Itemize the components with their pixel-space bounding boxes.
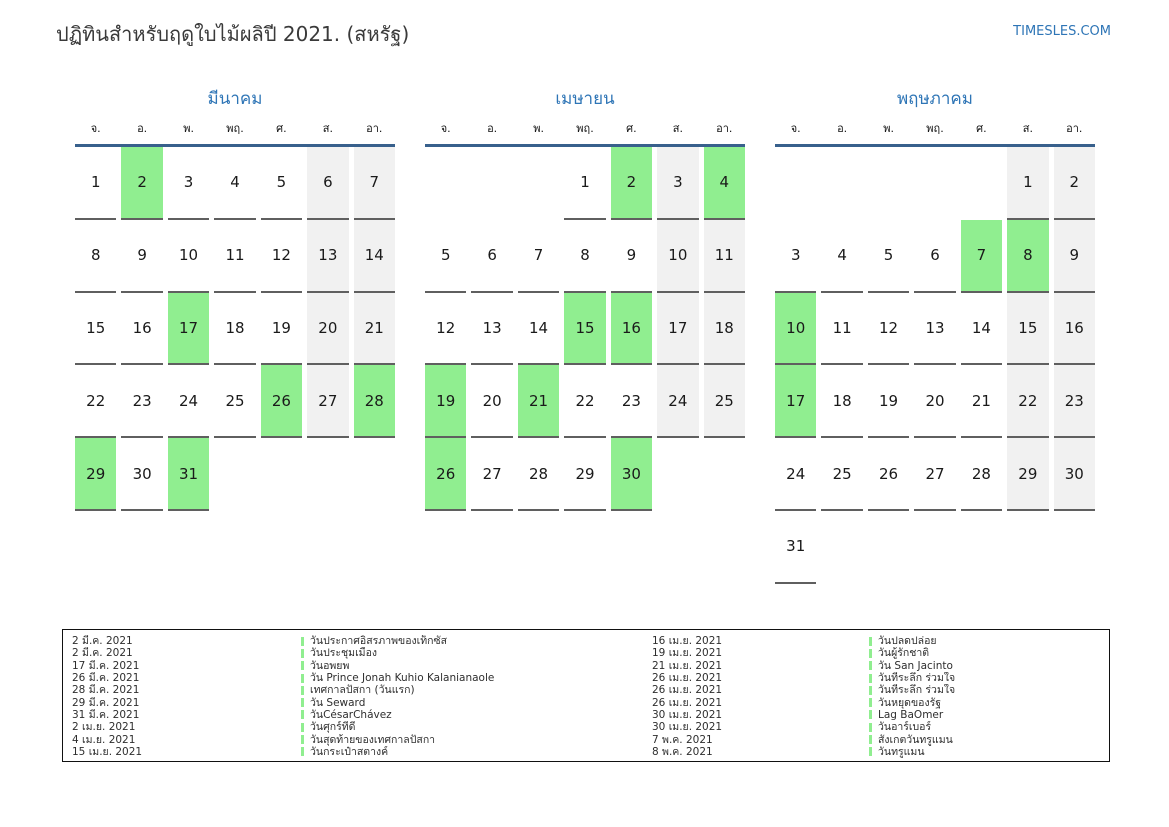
legend-label-text: วันประกาศอิสรภาพของเท็กซัส bbox=[310, 635, 447, 647]
day-cell: 5 bbox=[425, 220, 466, 293]
day-cell: 7 bbox=[518, 220, 559, 293]
weekday-label: จ. bbox=[425, 122, 466, 136]
holiday-marker-icon bbox=[301, 649, 304, 658]
legend-label-text: วันอาร์เบอร์ bbox=[878, 721, 931, 733]
calendars: มีนาคมจ.อ.พ.พฤ.ศ.ส.อา.123456789101112131… bbox=[75, 88, 1095, 584]
legend-entry: วันประกาศอิสรภาพของเท็กซัส bbox=[301, 635, 643, 647]
day-cell: 27 bbox=[307, 365, 348, 438]
legend-entry: เทศกาลปัสกา (วันแรก) bbox=[301, 684, 643, 696]
day-cell: 12 bbox=[868, 293, 909, 366]
legend-row: 29 มี.ค. 2021วัน Seward26 เม.ย. 2021วันห… bbox=[63, 696, 1109, 708]
day-cell bbox=[518, 147, 559, 220]
weekday-label: พฤ. bbox=[214, 122, 255, 136]
day-cell bbox=[868, 511, 909, 584]
day-cell: 20 bbox=[471, 365, 512, 438]
legend-label-text: วันทรูแมน bbox=[878, 746, 925, 758]
day-cell: 19 bbox=[868, 365, 909, 438]
legend-entry: วัน San Jacinto bbox=[869, 660, 1109, 672]
day-cell: 25 bbox=[704, 365, 745, 438]
day-cell: 1 bbox=[564, 147, 605, 220]
legend-date: 28 มี.ค. 2021 bbox=[63, 684, 301, 696]
legend-label-text: วัน San Jacinto bbox=[878, 660, 953, 672]
month-block: เมษายนจ.อ.พ.พฤ.ศ.ส.อา.123456789101112131… bbox=[425, 88, 745, 584]
legend-row: 28 มี.ค. 2021เทศกาลปัสกา (วันแรก)26 เม.ย… bbox=[63, 684, 1109, 696]
legend-date: 8 พ.ค. 2021 bbox=[643, 746, 869, 758]
day-cell bbox=[214, 438, 255, 511]
day-cell: 15 bbox=[1007, 293, 1048, 366]
day-cell: 3 bbox=[775, 220, 816, 293]
day-cell: 4 bbox=[704, 147, 745, 220]
day-cell: 29 bbox=[75, 438, 116, 511]
legend-entry: วันสุดท้ายของเทศกาลปัสกา bbox=[301, 734, 643, 746]
legend-entry: วันอพยพ bbox=[301, 660, 643, 672]
day-cell: 18 bbox=[704, 293, 745, 366]
day-cell: 12 bbox=[261, 220, 302, 293]
legend-entry: วันอาร์เบอร์ bbox=[869, 721, 1109, 733]
site-link[interactable]: TIMESLES.COM bbox=[1013, 24, 1111, 39]
weekday-label: ส. bbox=[657, 122, 698, 136]
legend-label-text: วันประชุมเมือง bbox=[310, 647, 377, 659]
day-cell bbox=[307, 438, 348, 511]
day-cell: 25 bbox=[821, 438, 862, 511]
day-cell: 9 bbox=[611, 220, 652, 293]
day-cell: 25 bbox=[214, 365, 255, 438]
day-cell: 2 bbox=[121, 147, 162, 220]
day-cell: 2 bbox=[1054, 147, 1095, 220]
legend-label-text: วัน Prince Jonah Kuhio Kalanianaole bbox=[310, 672, 494, 684]
day-cell: 5 bbox=[261, 147, 302, 220]
legend-entry: วันประชุมเมือง bbox=[301, 647, 643, 659]
weekday-header-row: จ.อ.พ.พฤ.ศ.ส.อา. bbox=[775, 122, 1095, 147]
day-cell: 8 bbox=[564, 220, 605, 293]
legend-date: 2 มี.ค. 2021 bbox=[63, 647, 301, 659]
day-cell: 22 bbox=[75, 365, 116, 438]
holiday-marker-icon bbox=[869, 686, 872, 695]
day-cell: 6 bbox=[914, 220, 955, 293]
legend-row: 2 มี.ค. 2021วันประชุมเมือง19 เม.ย. 2021ว… bbox=[63, 647, 1109, 659]
weekday-label: จ. bbox=[75, 122, 116, 136]
legend-entry: วันปลดปล่อย bbox=[869, 635, 1109, 647]
day-cell bbox=[261, 438, 302, 511]
day-cell: 1 bbox=[75, 147, 116, 220]
day-cell: 1 bbox=[1007, 147, 1048, 220]
weekday-label: อ. bbox=[471, 122, 512, 136]
day-cell: 24 bbox=[657, 365, 698, 438]
legend-entry: วันที่ระลึก ร่วมใจ bbox=[869, 684, 1109, 696]
legend-entry: วัน Prince Jonah Kuhio Kalanianaole bbox=[301, 672, 643, 684]
holiday-marker-icon bbox=[869, 747, 872, 756]
holiday-marker-icon bbox=[869, 637, 872, 646]
legend-label-text: วันศุกร์ที่ดี bbox=[310, 721, 355, 733]
weekday-label: ส. bbox=[1007, 122, 1048, 136]
page-title: ปฏิทินสำหรับฤดูใบไม้ผลิปี 2021. (สหรัฐ) bbox=[56, 18, 409, 50]
legend-label-text: วันอพยพ bbox=[310, 660, 349, 672]
day-cell: 28 bbox=[961, 438, 1002, 511]
day-cell: 10 bbox=[657, 220, 698, 293]
month-block: มีนาคมจ.อ.พ.พฤ.ศ.ส.อา.123456789101112131… bbox=[75, 88, 395, 584]
day-cell bbox=[1007, 511, 1048, 584]
holiday-marker-icon bbox=[869, 661, 872, 670]
day-cell bbox=[425, 147, 466, 220]
day-cell: 9 bbox=[121, 220, 162, 293]
day-grid: 1234567891011121314151617181920212223242… bbox=[75, 147, 395, 511]
day-cell: 18 bbox=[214, 293, 255, 366]
legend-entry: สังเกตวันทรูแมน bbox=[869, 734, 1109, 746]
legend-entry: วันผู้รักชาติ bbox=[869, 647, 1109, 659]
day-grid: 1234567891011121314151617181920212223242… bbox=[775, 147, 1095, 584]
legend-date: 31 มี.ค. 2021 bbox=[63, 709, 301, 721]
day-cell: 24 bbox=[775, 438, 816, 511]
day-cell: 17 bbox=[168, 293, 209, 366]
day-cell: 23 bbox=[121, 365, 162, 438]
holiday-marker-icon bbox=[869, 649, 872, 658]
day-cell bbox=[868, 147, 909, 220]
holiday-marker-icon bbox=[301, 674, 304, 683]
day-grid: 1234567891011121314151617181920212223242… bbox=[425, 147, 745, 511]
day-cell bbox=[775, 147, 816, 220]
legend-label-text: วันหยุดของรัฐ bbox=[878, 697, 941, 709]
holiday-marker-icon bbox=[301, 686, 304, 695]
day-cell: 3 bbox=[168, 147, 209, 220]
legend-date: 19 เม.ย. 2021 bbox=[643, 647, 869, 659]
day-cell: 7 bbox=[354, 147, 395, 220]
weekday-label: อ. bbox=[821, 122, 862, 136]
day-cell: 29 bbox=[564, 438, 605, 511]
day-cell: 10 bbox=[775, 293, 816, 366]
day-cell: 13 bbox=[471, 293, 512, 366]
weekday-label: พ. bbox=[518, 122, 559, 136]
day-cell: 3 bbox=[657, 147, 698, 220]
day-cell: 9 bbox=[1054, 220, 1095, 293]
day-cell: 17 bbox=[775, 365, 816, 438]
weekday-header-row: จ.อ.พ.พฤ.ศ.ส.อา. bbox=[425, 122, 745, 147]
weekday-label: ศ. bbox=[611, 122, 652, 136]
legend-date: 2 มี.ค. 2021 bbox=[63, 635, 301, 647]
day-cell: 23 bbox=[611, 365, 652, 438]
day-cell: 21 bbox=[354, 293, 395, 366]
day-cell: 18 bbox=[821, 365, 862, 438]
day-cell: 8 bbox=[1007, 220, 1048, 293]
day-cell: 26 bbox=[425, 438, 466, 511]
legend-row: 31 มี.ค. 2021วันCésarChávez30 เม.ย. 2021… bbox=[63, 709, 1109, 721]
holiday-marker-icon bbox=[301, 637, 304, 646]
day-cell: 28 bbox=[518, 438, 559, 511]
legend-entry: Lag BaOmer bbox=[869, 709, 1109, 721]
month-title: มีนาคม bbox=[75, 88, 395, 110]
legend-entry: วันCésarChávez bbox=[301, 709, 643, 721]
legend-date: 2 เม.ย. 2021 bbox=[63, 721, 301, 733]
weekday-label: พ. bbox=[868, 122, 909, 136]
legend-date: 29 มี.ค. 2021 bbox=[63, 697, 301, 709]
day-cell: 13 bbox=[307, 220, 348, 293]
legend-label-text: สังเกตวันทรูแมน bbox=[878, 734, 953, 746]
day-cell: 6 bbox=[307, 147, 348, 220]
day-cell: 28 bbox=[354, 365, 395, 438]
weekday-label: พ. bbox=[168, 122, 209, 136]
legend-date: 30 เม.ย. 2021 bbox=[643, 709, 869, 721]
holiday-marker-icon bbox=[301, 710, 304, 719]
legend-date: 26 เม.ย. 2021 bbox=[643, 684, 869, 696]
day-cell: 20 bbox=[914, 365, 955, 438]
legend-row: 15 เม.ย. 2021วันกระเป๋าสตางค์8 พ.ค. 2021… bbox=[63, 746, 1109, 758]
month-block: พฤษภาคมจ.อ.พ.พฤ.ศ.ส.อา.12345678910111213… bbox=[775, 88, 1095, 584]
day-cell: 12 bbox=[425, 293, 466, 366]
holiday-marker-icon bbox=[869, 735, 872, 744]
day-cell: 6 bbox=[471, 220, 512, 293]
legend-row: 4 เม.ย. 2021วันสุดท้ายของเทศกาลปัสกา7 พ.… bbox=[63, 733, 1109, 745]
day-cell: 11 bbox=[821, 293, 862, 366]
legend-label-text: Lag BaOmer bbox=[878, 709, 943, 721]
holiday-marker-icon bbox=[301, 723, 304, 732]
day-cell: 4 bbox=[821, 220, 862, 293]
legend-row: 2 เม.ย. 2021วันศุกร์ที่ดี30 เม.ย. 2021วั… bbox=[63, 721, 1109, 733]
weekday-label: อา. bbox=[1054, 122, 1095, 136]
day-cell bbox=[471, 147, 512, 220]
day-cell bbox=[961, 511, 1002, 584]
weekday-label: อา. bbox=[354, 122, 395, 136]
legend-row: 2 มี.ค. 2021วันประกาศอิสรภาพของเท็กซัส16… bbox=[63, 635, 1109, 647]
day-cell: 7 bbox=[961, 220, 1002, 293]
legend-date: 26 มี.ค. 2021 bbox=[63, 672, 301, 684]
legend-box: 2 มี.ค. 2021วันประกาศอิสรภาพของเท็กซัส16… bbox=[62, 629, 1110, 762]
day-cell: 15 bbox=[75, 293, 116, 366]
legend-date: 30 เม.ย. 2021 bbox=[643, 721, 869, 733]
legend-date: 21 เม.ย. 2021 bbox=[643, 660, 869, 672]
day-cell: 23 bbox=[1054, 365, 1095, 438]
day-cell: 21 bbox=[961, 365, 1002, 438]
day-cell bbox=[704, 438, 745, 511]
day-cell: 14 bbox=[518, 293, 559, 366]
day-cell: 19 bbox=[261, 293, 302, 366]
day-cell: 26 bbox=[261, 365, 302, 438]
day-cell bbox=[821, 511, 862, 584]
holiday-marker-icon bbox=[301, 735, 304, 744]
day-cell: 31 bbox=[775, 511, 816, 584]
weekday-label: ศ. bbox=[261, 122, 302, 136]
day-cell bbox=[961, 147, 1002, 220]
legend-date: 17 มี.ค. 2021 bbox=[63, 660, 301, 672]
legend-row: 26 มี.ค. 2021วัน Prince Jonah Kuhio Kala… bbox=[63, 672, 1109, 684]
day-cell: 11 bbox=[704, 220, 745, 293]
month-title: เมษายน bbox=[425, 88, 745, 110]
day-cell: 27 bbox=[914, 438, 955, 511]
legend-entry: วันศุกร์ที่ดี bbox=[301, 721, 643, 733]
legend-label-text: วันปลดปล่อย bbox=[878, 635, 937, 647]
day-cell bbox=[657, 438, 698, 511]
day-cell: 26 bbox=[868, 438, 909, 511]
day-cell: 22 bbox=[1007, 365, 1048, 438]
weekday-label: จ. bbox=[775, 122, 816, 136]
month-title: พฤษภาคม bbox=[775, 88, 1095, 110]
legend-entry: วันหยุดของรัฐ bbox=[869, 697, 1109, 709]
day-cell: 19 bbox=[425, 365, 466, 438]
legend-label-text: วันที่ระลึก ร่วมใจ bbox=[878, 672, 955, 684]
day-cell bbox=[914, 147, 955, 220]
legend-entry: วันที่ระลึก ร่วมใจ bbox=[869, 672, 1109, 684]
day-cell: 16 bbox=[1054, 293, 1095, 366]
day-cell: 24 bbox=[168, 365, 209, 438]
legend-label-text: วันกระเป๋าสตางค์ bbox=[310, 746, 388, 758]
legend-date: 16 เม.ย. 2021 bbox=[643, 635, 869, 647]
day-cell: 8 bbox=[75, 220, 116, 293]
day-cell: 30 bbox=[611, 438, 652, 511]
legend-label-text: เทศกาลปัสกา (วันแรก) bbox=[310, 684, 415, 696]
legend-entry: วัน Seward bbox=[301, 697, 643, 709]
day-cell: 14 bbox=[961, 293, 1002, 366]
day-cell: 13 bbox=[914, 293, 955, 366]
holiday-marker-icon bbox=[869, 674, 872, 683]
day-cell: 16 bbox=[611, 293, 652, 366]
weekday-label: ศ. bbox=[961, 122, 1002, 136]
day-cell: 20 bbox=[307, 293, 348, 366]
holiday-marker-icon bbox=[869, 723, 872, 732]
holiday-marker-icon bbox=[301, 698, 304, 707]
day-cell: 15 bbox=[564, 293, 605, 366]
day-cell: 10 bbox=[168, 220, 209, 293]
legend-entry: วันกระเป๋าสตางค์ bbox=[301, 746, 643, 758]
day-cell: 30 bbox=[1054, 438, 1095, 511]
weekday-label: อา. bbox=[704, 122, 745, 136]
day-cell bbox=[1054, 511, 1095, 584]
legend-label-text: วันสุดท้ายของเทศกาลปัสกา bbox=[310, 734, 435, 746]
holiday-marker-icon bbox=[869, 710, 872, 719]
weekday-label: ส. bbox=[307, 122, 348, 136]
day-cell: 2 bbox=[611, 147, 652, 220]
day-cell: 17 bbox=[657, 293, 698, 366]
day-cell bbox=[354, 438, 395, 511]
legend-date: 4 เม.ย. 2021 bbox=[63, 734, 301, 746]
legend-date: 7 พ.ค. 2021 bbox=[643, 734, 869, 746]
day-cell: 5 bbox=[868, 220, 909, 293]
day-cell: 14 bbox=[354, 220, 395, 293]
day-cell bbox=[914, 511, 955, 584]
legend-entry: วันทรูแมน bbox=[869, 746, 1109, 758]
legend-date: 15 เม.ย. 2021 bbox=[63, 746, 301, 758]
weekday-label: อ. bbox=[121, 122, 162, 136]
weekday-header-row: จ.อ.พ.พฤ.ศ.ส.อา. bbox=[75, 122, 395, 147]
day-cell: 21 bbox=[518, 365, 559, 438]
legend-label-text: วันผู้รักชาติ bbox=[878, 647, 929, 659]
page-header: ปฏิทินสำหรับฤดูใบไม้ผลิปี 2021. (สหรัฐ) … bbox=[0, 0, 1169, 50]
legend-label-text: วันที่ระลึก ร่วมใจ bbox=[878, 684, 955, 696]
day-cell: 16 bbox=[121, 293, 162, 366]
holiday-marker-icon bbox=[869, 698, 872, 707]
legend-date: 26 เม.ย. 2021 bbox=[643, 672, 869, 684]
day-cell: 4 bbox=[214, 147, 255, 220]
day-cell: 31 bbox=[168, 438, 209, 511]
legend-date: 26 เม.ย. 2021 bbox=[643, 697, 869, 709]
weekday-label: พฤ. bbox=[564, 122, 605, 136]
day-cell: 29 bbox=[1007, 438, 1048, 511]
holiday-marker-icon bbox=[301, 661, 304, 670]
legend-label-text: วัน Seward bbox=[310, 697, 365, 709]
weekday-label: พฤ. bbox=[914, 122, 955, 136]
day-cell: 27 bbox=[471, 438, 512, 511]
legend-row: 17 มี.ค. 2021วันอพยพ21 เม.ย. 2021วัน San… bbox=[63, 660, 1109, 672]
day-cell: 30 bbox=[121, 438, 162, 511]
day-cell: 11 bbox=[214, 220, 255, 293]
day-cell: 22 bbox=[564, 365, 605, 438]
holiday-marker-icon bbox=[301, 747, 304, 756]
legend-label-text: วันCésarChávez bbox=[310, 709, 392, 721]
day-cell bbox=[821, 147, 862, 220]
